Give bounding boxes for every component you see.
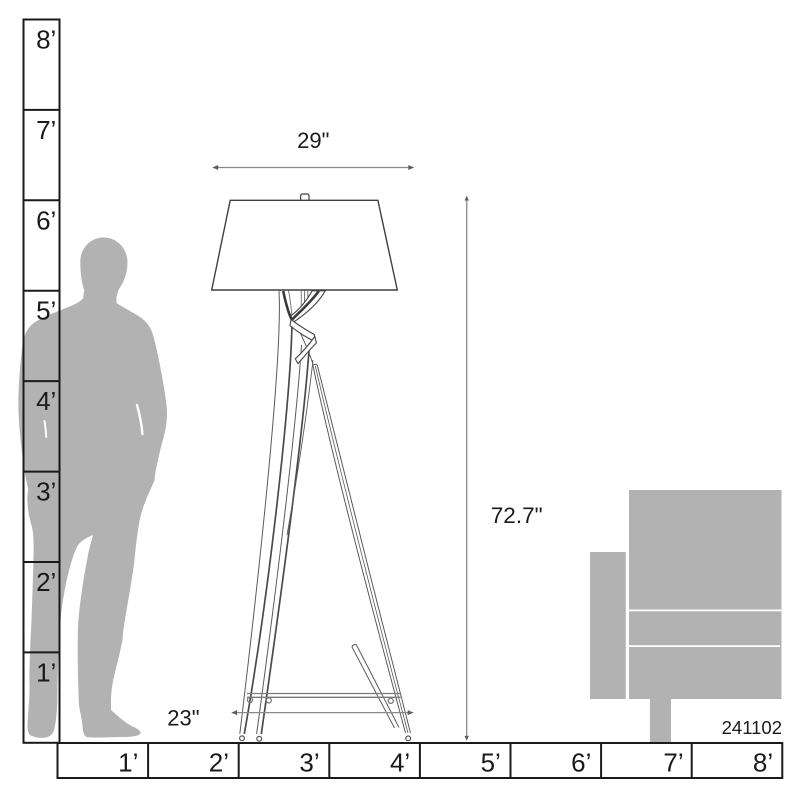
- svg-text:5’: 5’: [481, 748, 501, 778]
- svg-text:6’: 6’: [36, 205, 56, 235]
- svg-text:3’: 3’: [299, 748, 319, 778]
- svg-text:6’: 6’: [571, 748, 591, 778]
- svg-text:7’: 7’: [663, 748, 683, 778]
- svg-text:2’: 2’: [209, 748, 229, 778]
- svg-text:1’: 1’: [36, 657, 56, 687]
- svg-text:23": 23": [167, 706, 199, 731]
- svg-text:8’: 8’: [36, 25, 56, 55]
- svg-text:3’: 3’: [36, 477, 56, 507]
- svg-text:2’: 2’: [36, 567, 56, 597]
- svg-text:4’: 4’: [36, 386, 56, 416]
- svg-text:5’: 5’: [36, 296, 56, 326]
- svg-text:8’: 8’: [753, 748, 773, 778]
- svg-text:72.7": 72.7": [491, 503, 543, 528]
- svg-text:1’: 1’: [118, 748, 138, 778]
- svg-text:4’: 4’: [390, 748, 410, 778]
- svg-text:7’: 7’: [36, 115, 56, 145]
- svg-text:241102: 241102: [722, 717, 782, 738]
- svg-text:29": 29": [297, 128, 329, 153]
